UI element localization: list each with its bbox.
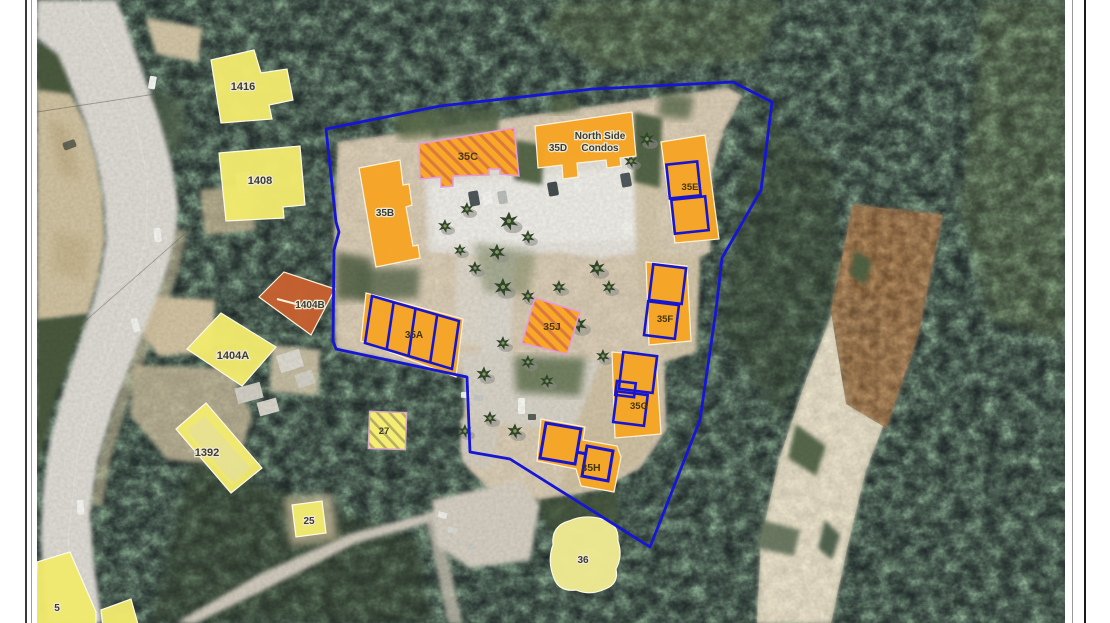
svg-text:1408: 1408 — [248, 175, 272, 187]
svg-text:35B: 35B — [376, 208, 394, 219]
svg-text:35H: 35H — [581, 462, 600, 474]
svg-text:35A: 35A — [405, 330, 423, 341]
svg-text:35C: 35C — [458, 151, 478, 163]
svg-text:36: 36 — [577, 555, 589, 566]
svg-text:35D: 35D — [549, 143, 567, 154]
svg-text:1404B: 1404B — [295, 300, 324, 311]
svg-text:35F: 35F — [657, 314, 674, 325]
svg-text:1416: 1416 — [231, 81, 255, 93]
svg-text:Condos: Condos — [581, 143, 619, 154]
svg-text:1392: 1392 — [195, 447, 219, 459]
svg-text:North Side: North Side — [575, 131, 626, 142]
svg-text:1404A: 1404A — [217, 350, 249, 362]
svg-text:25: 25 — [303, 516, 315, 527]
svg-text:35G: 35G — [630, 401, 648, 412]
svg-text:35E: 35E — [682, 182, 699, 193]
svg-text:5: 5 — [54, 603, 60, 614]
svg-text:27: 27 — [379, 426, 390, 437]
svg-text:35J: 35J — [543, 321, 561, 333]
